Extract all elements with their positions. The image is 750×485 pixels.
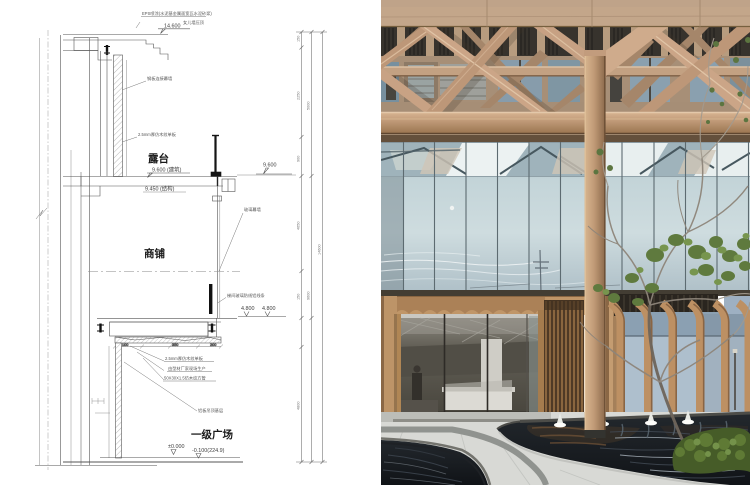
- svg-text:-0.100(224.9): -0.100(224.9): [192, 448, 225, 454]
- svg-text:商铺: 商铺: [144, 247, 165, 260]
- svg-text:4.800: 4.800: [262, 306, 276, 312]
- svg-text:350: 350: [172, 343, 178, 347]
- svg-text:梯间玻璃防线铝线条: 梯间玻璃防线铝线条: [227, 292, 266, 299]
- svg-text:9.600 (建筑): 9.600 (建筑): [152, 166, 182, 174]
- svg-text:9.600: 9.600: [263, 163, 277, 169]
- svg-text:4.800: 4.800: [241, 306, 255, 312]
- svg-text:150: 150: [297, 36, 301, 42]
- svg-text:露台: 露台: [148, 152, 169, 165]
- svg-text:2.5mm厚仿木纹单板: 2.5mm厚仿木纹单板: [138, 131, 177, 138]
- svg-text:50X30X1.5仿木纹方管: 50X30X1.5仿木纹方管: [164, 375, 206, 382]
- svg-text:9.450 (结构): 9.450 (结构): [145, 185, 175, 193]
- svg-text:4800: 4800: [297, 402, 301, 410]
- svg-text:150: 150: [297, 294, 301, 300]
- svg-text:铝板吊顶基层: 铝板吊顶基层: [198, 407, 223, 414]
- svg-text:200: 200: [210, 343, 216, 347]
- svg-text:女儿墙压顶: 女儿墙压顶: [183, 19, 205, 26]
- svg-text:玻璃幕墙: 玻璃幕墙: [244, 206, 261, 213]
- svg-text:EPS喷涂(水泥基金属面宽瓦水泥砂浆): EPS喷涂(水泥基金属面宽瓦水泥砂浆): [142, 10, 212, 17]
- svg-text:14600: 14600: [318, 244, 322, 255]
- svg-text:100: 100: [122, 343, 128, 347]
- svg-text:±0.000: ±0.000: [168, 444, 184, 450]
- svg-text:4650: 4650: [297, 222, 301, 230]
- svg-text:900: 900: [297, 156, 301, 162]
- svg-text:2.5mm厚仿木纹单板: 2.5mm厚仿木纹单板: [165, 355, 204, 362]
- svg-text:由型材厂家现场生产: 由型材厂家现场生产: [168, 365, 206, 372]
- svg-text:一级广场: 一级广场: [191, 428, 233, 441]
- svg-text:钢板连接幕墙: 钢板连接幕墙: [147, 75, 172, 82]
- svg-text:9600: 9600: [307, 292, 311, 300]
- svg-text:5000: 5000: [307, 102, 311, 110]
- svg-text:2250: 2250: [297, 92, 301, 100]
